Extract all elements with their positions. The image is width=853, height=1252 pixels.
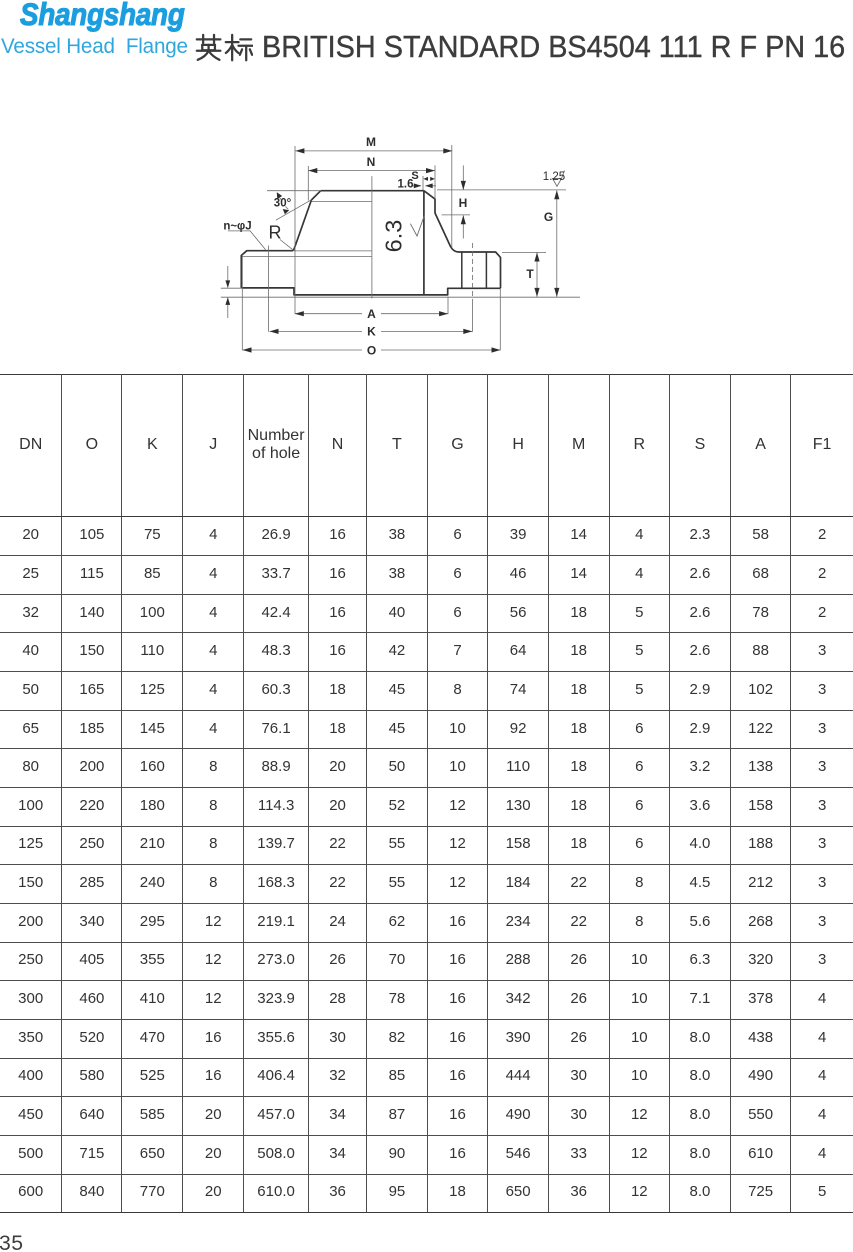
svg-text:N: N <box>367 155 376 169</box>
svg-text:K: K <box>367 325 376 339</box>
svg-text:H: H <box>459 196 468 210</box>
svg-text:n~φJ: n~φJ <box>223 220 251 232</box>
svg-text:30°: 30° <box>274 197 292 209</box>
svg-text:1.6: 1.6 <box>398 179 414 191</box>
svg-text:O: O <box>367 343 376 357</box>
svg-text:G: G <box>544 210 553 224</box>
svg-text:T: T <box>526 267 534 281</box>
svg-text:A: A <box>367 307 376 321</box>
svg-text:M: M <box>366 135 376 149</box>
svg-text:R: R <box>269 223 282 243</box>
svg-text:6.3: 6.3 <box>381 220 407 253</box>
svg-text:1.25: 1.25 <box>543 171 565 183</box>
